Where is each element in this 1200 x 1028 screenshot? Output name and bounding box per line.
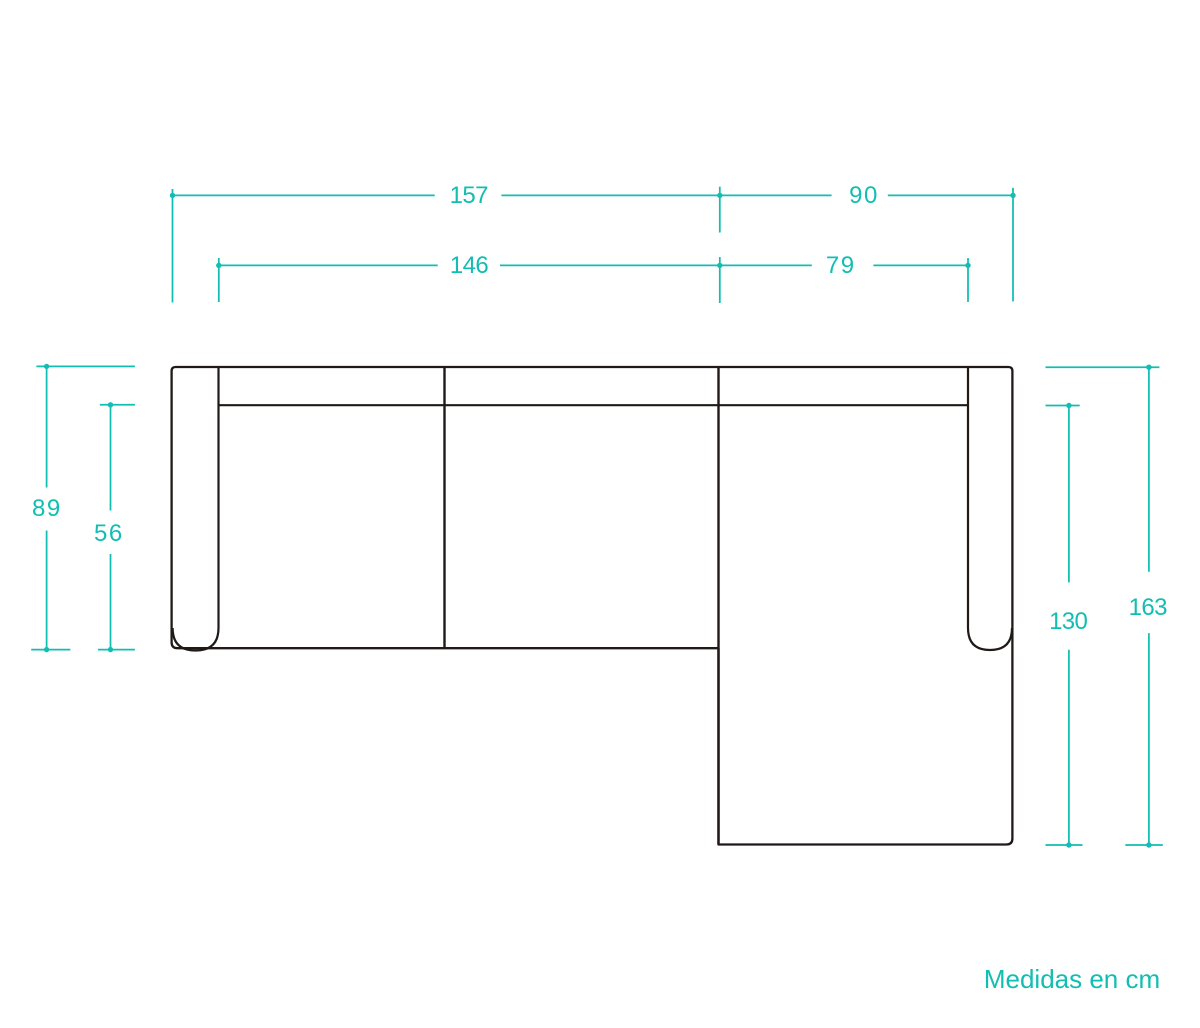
- svg-text:157: 157: [450, 182, 488, 209]
- svg-text:Medidas en cm: Medidas en cm: [984, 964, 1160, 994]
- svg-text:90: 90: [849, 182, 879, 209]
- svg-text:130: 130: [1049, 608, 1087, 635]
- svg-text:89: 89: [32, 495, 62, 522]
- svg-text:79: 79: [826, 252, 856, 279]
- svg-text:146: 146: [450, 252, 488, 279]
- svg-text:163: 163: [1129, 594, 1167, 621]
- svg-text:56: 56: [94, 520, 124, 547]
